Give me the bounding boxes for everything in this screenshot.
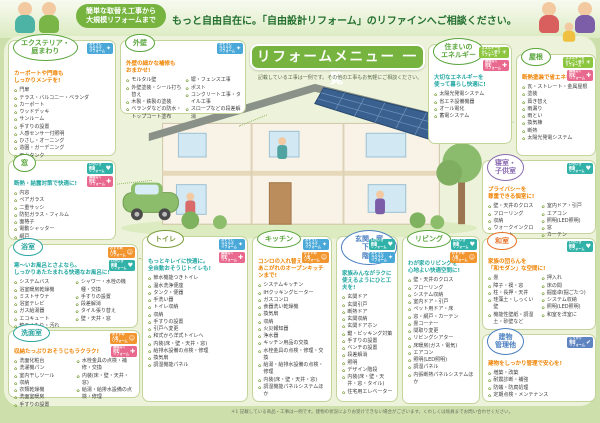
- menu-item: ✿室内干しツール: [14, 373, 73, 380]
- header-bubble: 簡単な取替え工事から 大規模リフォームまで: [76, 4, 166, 28]
- menu-item: ✿ポスト: [186, 85, 242, 92]
- menu-item-label: 段差解消: [347, 352, 367, 359]
- menu-item: ✿水栓金具の点検・修理・交換: [258, 348, 327, 363]
- menu-item: ✿珪藻土・しっくい壁: [488, 297, 538, 312]
- menu-item-label: 壁・天井のクロス: [413, 277, 453, 284]
- menu-item: ✿手すりの設置: [14, 402, 73, 409]
- menu-item-label: 洗濯機パン: [19, 365, 44, 372]
- menu-item-label: 住宅用エレベーター: [347, 389, 392, 396]
- item-list: ✿畳✿障子・襖・窓✿柱・長押・天井✿珪藻土・しっくい壁✿機能性壁紙・調湿土・砂壁…: [488, 275, 591, 326]
- menu-item-label: テラス・バルコニー・ベランダ: [19, 95, 89, 102]
- flower-bullet-icon: ✿: [342, 302, 345, 309]
- menu-item-label: 温水洗浄便座: [153, 283, 183, 290]
- flower-bullet-icon: ✿: [258, 348, 261, 355]
- badge-group: おそうじ ラクラク リフォーム✦: [217, 43, 243, 54]
- badge-kenko: いきいき 健康 リフォーム♥: [567, 163, 593, 174]
- menu-item: ✿エアコン: [408, 350, 475, 357]
- cross-icon: ✚: [238, 255, 243, 261]
- menu-item-label: 二重サッシ: [19, 205, 44, 212]
- flower-bullet-icon: ✿: [186, 92, 189, 99]
- flower-bullet-icon: ✿: [14, 102, 17, 109]
- menu-item-label: 機能性壁紙・調湿土・砂壁など: [493, 312, 537, 327]
- menu-item-label: 収納: [263, 319, 273, 326]
- menu-item-label: タンク・便器: [153, 290, 183, 297]
- flower-bullet-icon: ✿: [14, 380, 17, 387]
- menu-item: ✿玄関引戸: [342, 302, 393, 309]
- flower-bullet-icon: ✿: [14, 190, 17, 197]
- door: [269, 183, 291, 225]
- flower-bullet-icon: ✿: [342, 374, 345, 381]
- menu-item-label: 玄関引戸: [347, 302, 367, 309]
- menu-item: ✿トイレ収納: [148, 304, 243, 311]
- menu-item: ✿内装(床・壁・天井・窓・タイル): [342, 374, 393, 389]
- flower-bullet-icon: ✿: [14, 109, 17, 116]
- flower-bullet-icon: ✿: [342, 331, 345, 338]
- badge-label: いきいき 健康 リフォーム: [569, 163, 585, 174]
- menu-item: ✿室内ドア・引戸: [542, 203, 592, 210]
- menu-item-label: 水栓金具の点検・補修・交換: [82, 358, 135, 373]
- menu-item: ✿フローリング: [408, 285, 475, 292]
- category-title: トイレ: [147, 230, 184, 248]
- menu-item-label: エコキュート: [19, 316, 49, 323]
- flower-bullet-icon: ✿: [342, 345, 345, 352]
- flower-bullet-icon: ✿: [258, 377, 261, 384]
- menu-item-label: 床の間: [547, 283, 562, 290]
- flower-bullet-icon: ✿: [14, 316, 17, 323]
- sparkle-icon: ✦: [106, 46, 111, 52]
- flower-bullet-icon: ✿: [488, 275, 491, 282]
- menu-item: ✿ミストサウナ: [14, 294, 72, 301]
- sparkle-icon: ✦: [322, 242, 327, 248]
- badge-kenko: いきいき 健康 リフォーム♥: [87, 163, 113, 174]
- menu-item-label: 塀・フェンス工事: [191, 77, 231, 84]
- person-body: [277, 145, 287, 159]
- menu-item: ✿段差解消: [342, 352, 393, 359]
- flower-bullet-icon: ✿: [408, 277, 411, 284]
- badge-group: しっかり 管理 リフォーム✔: [567, 337, 593, 348]
- flower-bullet-icon: ✿: [408, 335, 411, 342]
- menu-item-label: 玄関ドアホン: [347, 323, 377, 330]
- menu-item: ✿手すりの設置: [148, 319, 243, 326]
- smiley-icon: ☺: [469, 255, 475, 261]
- category-box-washroom: 洗面室 おすすめ 人気 リフォーム☺無理なく 防犯 リフォーム✚ 収納たっぷりお…: [8, 330, 140, 398]
- flower-bullet-icon: ✿: [14, 116, 17, 123]
- menu-item-label: ミストサウナ: [19, 294, 49, 301]
- flower-bullet-icon: ✿: [148, 362, 151, 369]
- menu-item: ✿太陽光発電システム: [434, 91, 507, 98]
- flower-bullet-icon: ✿: [522, 99, 525, 106]
- flower-bullet-icon: ✿: [542, 211, 545, 218]
- menu-item: ✿ペット用ドア・床: [408, 306, 475, 313]
- category-box-toilet: トイレ おそうじ ラクラク リフォーム✦無理なく 防犯 リフォーム✚ もっとキレ…: [142, 236, 248, 402]
- item-list: ✿壁・天井のクロス✿フローリング✿システム収納✿室内ドア・引戸✿ペット用ドア・床…: [408, 277, 475, 386]
- menu-item-label: モルタル壁: [131, 77, 156, 84]
- cross-icon: ✚: [130, 349, 135, 355]
- flower-bullet-icon: ✿: [126, 85, 129, 92]
- menu-item-label: 太陽光発電システム: [439, 91, 484, 98]
- flower-bullet-icon: ✿: [14, 365, 17, 372]
- menu-item: ✿雨漏り: [522, 106, 591, 113]
- flower-bullet-icon: ✿: [77, 358, 80, 365]
- flower-bullet-icon: ✿: [14, 402, 17, 409]
- category-title: 洗面室: [13, 324, 50, 342]
- badge-group: いきいき 健康 リフォーム♥無理なく 防犯 リフォーム✚: [87, 163, 113, 187]
- category-title: 住まいの エネルギー: [433, 38, 484, 65]
- item-list: ✿増築・改築✿耐震診断・補強✿防蟻・防腐処理✿定期点検・メンテナンス: [488, 370, 591, 399]
- window: [178, 133, 206, 157]
- flower-bullet-icon: ✿: [542, 275, 545, 282]
- flower-bullet-icon: ✿: [148, 333, 151, 340]
- menu-item-label: IHクッキングヒーター: [263, 290, 313, 297]
- flower-bullet-icon: ✿: [342, 389, 345, 396]
- menu-item-label: 窓: [547, 225, 552, 232]
- menu-item-label: 葺き替え: [527, 99, 547, 106]
- menu-item: ✿給湯・給排水設備の点検・修理: [258, 362, 327, 377]
- menu-item: ✿ガス給湯器: [14, 308, 72, 315]
- person-figure: [38, 2, 60, 35]
- menu-item-label: 収納: [493, 218, 503, 225]
- badge-group: おすすめ 人気 リフォーム☺無理なく 防犯 リフォーム✚: [110, 333, 137, 357]
- menu-item-label: システムバス: [19, 279, 49, 286]
- category-box-wall: 外壁 おそうじ ラクラク リフォーム✦ 外壁の細かな補修も おまかせ! ✿モルタ…: [120, 40, 246, 114]
- flower-bullet-icon: ✿: [342, 338, 345, 345]
- menu-item-label: 人感センサー付照明: [19, 131, 64, 138]
- menu-item-label: 手すりの設置: [153, 319, 183, 326]
- flower-bullet-icon: ✿: [258, 340, 261, 347]
- category-tagline: 大切なエネルギーを 使って暮らし快適に!: [434, 75, 507, 89]
- flower-bullet-icon: ✿: [14, 387, 17, 394]
- menu-item-label: カーポート: [19, 102, 44, 109]
- flower-bullet-icon: ✿: [342, 323, 345, 330]
- flower-bullet-icon: ✿: [76, 294, 79, 301]
- menu-item: ✿玄関ドア: [342, 294, 393, 301]
- flower-bullet-icon: ✿: [14, 294, 17, 301]
- menu-item-label: 蓄電システム: [439, 113, 469, 120]
- menu-item: ✿耐震診断・補強: [488, 377, 591, 384]
- category-title: リビング: [407, 230, 451, 248]
- category-box-bedroom: 寝室・ 子供室 いきいき 健康 リフォーム♥ プライバシーを 尊重できる個室に!…: [482, 160, 596, 234]
- flower-bullet-icon: ✿: [76, 279, 79, 286]
- menu-item-label: システムキッチン: [263, 282, 303, 289]
- flower-bullet-icon: ✿: [408, 306, 411, 313]
- menu-item-label: フローリング: [493, 211, 523, 218]
- menu-item-label: 照明(LED照明): [547, 218, 581, 225]
- menu-item-label: 調湿機能パネル: [153, 362, 188, 369]
- flower-bullet-icon: ✿: [522, 91, 525, 98]
- badge-energy: エネルギーを かしこく使う リフォーム☀: [479, 47, 509, 58]
- menu-item: ✿定期点検・メンテナンス: [488, 392, 591, 399]
- badge-label: おすすめ 人気 リフォーム: [304, 252, 320, 263]
- badge-bohan: 無理なく 防犯 リフォーム✚: [219, 252, 245, 263]
- badge-label: おそうじ ラクラク リフォーム: [89, 43, 105, 54]
- menu-item-label: 内装(床・壁・天井・窓): [153, 341, 207, 348]
- heart-icon: ♥: [128, 263, 133, 269]
- menu-item-label: 門扉: [19, 87, 29, 94]
- menu-item-label: 照明: [347, 360, 357, 367]
- flower-bullet-icon: ✿: [77, 387, 80, 394]
- flower-bullet-icon: ✿: [408, 350, 411, 357]
- menu-item: ✿床暖房(ガス・電気): [408, 343, 475, 350]
- item-list: ✿玄関ドア✿玄関引戸✿断熱ドア✿玄関収納✿玄関ドアホン✿鍵・ピッキング対策✿手す…: [342, 294, 393, 396]
- menu-item: ✿フローリング: [488, 211, 538, 218]
- badge-group: おそうじ ラクラク リフォーム✦: [87, 43, 113, 54]
- person-figure: [538, 2, 560, 35]
- category-box-roof: 屋根 エネルギーを かしこく使う リフォーム☀無理なく 防犯 リフォーム✚ 断熱…: [516, 54, 596, 156]
- category-title: 寝室・ 子供室: [487, 154, 524, 181]
- item-list: ✿内窓✿ペアガラス✿二重サッシ✿防犯ガラス・フィルム✿面格子✿電動シャッター✿網…: [14, 190, 111, 241]
- menu-item: ✿システム収納: [542, 297, 592, 304]
- menu-item: ✿防蟻・防腐処理: [488, 385, 591, 392]
- menu-item: ✿壁・天井・窓: [76, 316, 134, 323]
- flower-bullet-icon: ✿: [14, 394, 17, 401]
- menu-item-label: 収納: [153, 312, 163, 319]
- flower-bullet-icon: ✿: [342, 316, 345, 323]
- menu-item: ✿和室を洋室に: [542, 312, 592, 319]
- menu-item: ✿サンルーム: [14, 116, 111, 123]
- menu-item-label: 給排水設備の点検・修理: [153, 348, 208, 355]
- flower-bullet-icon: ✿: [14, 197, 17, 204]
- badge-label: 無理なく 防犯 リフォーム: [221, 252, 237, 263]
- flower-bullet-icon: ✿: [434, 91, 437, 98]
- badge-group: エネルギーを かしこく使う リフォーム☀無理なく 防犯 リフォーム✚: [563, 57, 593, 81]
- menu-item: ✿掘座卓(掘ごたつ): [542, 290, 592, 297]
- badge-label: いきいき 健康 リフォーム: [453, 239, 469, 250]
- menu-item: ✿内装(床・壁・天井・窓): [258, 377, 327, 384]
- menu-item-label: 水栓金具の点検・修理・交換: [263, 348, 327, 363]
- menu-item: ✿テラス・バルコニー・ベランダ: [14, 95, 111, 102]
- menu-item: ✿窓: [542, 225, 592, 232]
- flower-bullet-icon: ✿: [76, 301, 79, 308]
- flower-bullet-icon: ✿: [342, 360, 345, 367]
- category-title: 外壁: [125, 34, 155, 52]
- menu-item-label: ウッドデッキ: [19, 109, 49, 116]
- menu-item-label: 手すりの設置: [81, 294, 111, 301]
- menu-item: ✿水栓金具の点検・補修・交換: [77, 358, 136, 373]
- flower-bullet-icon: ✿: [434, 113, 437, 120]
- category-tagline: 外壁の細かな補修も おまかせ!: [126, 61, 241, 75]
- menu-item: ✿外壁塗装・シール打ち替え: [126, 85, 182, 100]
- menu-item: ✿コンクリート工事・タイル工事: [186, 92, 242, 107]
- sparkle-icon: ✦: [388, 255, 393, 261]
- category-box-energy: 住まいの エネルギー エネルギーを かしこく使う リフォーム☀無理なく 防犯 リ…: [428, 44, 512, 144]
- flower-bullet-icon: ✿: [258, 333, 261, 340]
- menu-item-label: 手すりの設置: [19, 402, 49, 409]
- check-icon: ✔: [586, 340, 591, 346]
- menu-item: ✿照明: [342, 360, 393, 367]
- menu-item: ✿ベランダなどの防水・トップコート塗布: [126, 106, 182, 121]
- item-list: ✿洗面化粧台✿洗濯機パン✿室内干しツール✿収納✿衣類乾燥機✿洗面室暖房✿手すりの…: [14, 358, 135, 409]
- menu-item: ✿シャワー・水栓の機種・交換: [76, 279, 134, 294]
- badge-label: いきいき 健康 リフォーム: [371, 239, 387, 250]
- badge-label: 無理なく 防犯 リフォーム: [485, 60, 501, 71]
- menu-item: ✿塀・フェンス工事: [186, 77, 242, 84]
- flower-bullet-icon: ✿: [408, 328, 411, 335]
- menu-item-label: 柱・長押・天井: [493, 290, 528, 297]
- category-tagline: 家族みんながラクに 使えるようにひと工夫を!: [342, 271, 393, 292]
- menu-item-label: 押入れ: [547, 275, 562, 282]
- badge-label: 無理なく 防犯 リフォーム: [569, 70, 585, 81]
- menu-item-label: 内装(床・壁・天井・窓): [263, 377, 317, 384]
- menu-item: ✿ペアガラス: [14, 197, 111, 204]
- menu-item: ✿障子・襖・窓: [488, 283, 538, 290]
- menu-item: ✿スロープなどの段差解消: [186, 106, 242, 121]
- badge-label: しっかり 管理 リフォーム: [569, 337, 585, 348]
- menu-item-label: 床暖房(ガス・電気): [413, 343, 457, 350]
- menu-item: ✿リビングシアター: [408, 335, 475, 342]
- item-list: ✿システムバス✿浴室暖房乾燥機✿ミストサウナ✿浴室テレビ✿ガス給湯器✿エコキュー…: [14, 279, 133, 330]
- category-tagline: カーポートや門扉も しっかりメンテを!: [14, 71, 111, 85]
- flower-bullet-icon: ✿: [522, 135, 525, 142]
- menu-item: ✿葺き替え: [522, 99, 591, 106]
- flower-bullet-icon: ✿: [14, 373, 17, 380]
- menu-item-label: キッチン用品の交換: [263, 340, 308, 347]
- badge-sukkiri: おそうじ ラクラク リフォーム✦: [219, 239, 245, 250]
- badge-kenko: いきいき 健康 リフォーム♥: [451, 239, 477, 250]
- menu-item-label: 雨漏り: [527, 106, 542, 113]
- menu-item-label: 塗装: [527, 91, 537, 98]
- flower-bullet-icon: ✿: [488, 312, 491, 319]
- smiley-icon: ☺: [321, 255, 327, 261]
- badge-group: いきいき 健康 リフォーム♥おそうじ ラクラク リフォーム✦: [369, 239, 395, 263]
- flower-bullet-icon: ✿: [258, 319, 261, 326]
- flower-bullet-icon: ✿: [14, 308, 17, 315]
- badge-group: おすすめ 人気 リフォーム☺いきいき 健康 リフォーム♥: [108, 247, 135, 271]
- menu-item: ✿住宅用エレベーター: [342, 389, 393, 396]
- menu-item: ✿内装(床・壁・天井・窓): [77, 373, 136, 388]
- badge-kenko: いきいき 健康 リフォーム♥: [369, 239, 395, 250]
- menu-item: ✿壁・天井のクロス: [408, 277, 475, 284]
- menu-item-label: トイレ収納: [153, 304, 178, 311]
- menu-item-label: 給湯・給排水設備の点検・修理: [263, 362, 327, 377]
- menu-item: ✿調湿パネル: [408, 364, 475, 371]
- menu-item-label: 手すりの設置: [19, 124, 49, 131]
- category-title: エクステリア・ 庭まわり: [13, 34, 78, 61]
- heart-icon: ♥: [586, 166, 591, 172]
- menu-item-label: 耐震診断・補強: [493, 377, 528, 384]
- flower-bullet-icon: ✿: [488, 283, 491, 290]
- heart-icon: ♥: [586, 244, 591, 250]
- menu-item: ✿洗面室暖房: [14, 394, 73, 401]
- flower-bullet-icon: ✿: [488, 290, 491, 297]
- category-box-exterior: エクステリア・ 庭まわり おそうじ ラクラク リフォーム✦ カーポートや門扉も …: [8, 40, 116, 156]
- menu-item-label: 内装(床・壁・天井・窓): [82, 373, 135, 388]
- badge-group: いきいき 健康 リフォーム♥おすすめ 人気 リフォーム☺: [450, 239, 477, 263]
- menu-item-label: エアコン: [413, 350, 433, 357]
- flower-bullet-icon: ✿: [408, 321, 411, 328]
- badge-label: おすすめ 人気 リフォーム: [112, 333, 128, 344]
- category-title: キッチン: [257, 230, 301, 248]
- flower-bullet-icon: ✿: [14, 205, 17, 212]
- badge-label: おすすめ 人気 リフォーム: [110, 247, 126, 258]
- menu-item-label: 室内干しツール: [19, 373, 54, 380]
- menu-item: ✿断熱: [522, 128, 591, 135]
- badge-label: いきいき 健康 リフォーム: [111, 260, 127, 271]
- menu-item-label: シャワー・水栓の機種・交換: [81, 279, 133, 294]
- menu-item-label: 内装(床・壁・天井・窓・タイル): [347, 374, 393, 389]
- flower-bullet-icon: ✿: [126, 99, 129, 106]
- sparkle-icon: ✦: [238, 242, 243, 248]
- badge-label: おそうじ ラクラク リフォーム: [219, 43, 235, 54]
- flower-bullet-icon: ✿: [148, 304, 151, 311]
- menu-item: ✿ウッドデッキ: [14, 109, 111, 116]
- menu-item: ✿IHクッキングヒーター: [258, 290, 327, 297]
- flower-bullet-icon: ✿: [14, 358, 17, 365]
- flower-bullet-icon: ✿: [126, 106, 129, 113]
- menu-item-label: 造園・ガーデニング: [19, 145, 64, 152]
- menu-item: ✿照明(LED照明): [542, 304, 592, 311]
- menu-item: ✿窓・網戸・カーテン: [408, 314, 475, 321]
- menu-item: ✿システム収納: [408, 292, 475, 299]
- item-list: ✿太陽光発電システム✿省エネ設備機器✿オール電化✿蓄電システム: [434, 91, 507, 120]
- badge-label: いきいき 健康 リフォーム: [89, 163, 105, 174]
- menu-item-label: 換気棟: [527, 120, 542, 127]
- sun-icon: ☀: [502, 50, 507, 56]
- menu-item: ✿床の間: [542, 283, 592, 290]
- flower-bullet-icon: ✿: [14, 87, 17, 94]
- flower-bullet-icon: ✿: [408, 299, 411, 306]
- menu-item-label: 調湿機能パネルシステムほか: [263, 384, 327, 399]
- menu-item-label: 照明(LED照明): [547, 304, 581, 311]
- flower-bullet-icon: ✿: [408, 292, 411, 299]
- menu-item-label: ペアガラス: [19, 197, 44, 204]
- flower-bullet-icon: ✿: [258, 290, 261, 297]
- person-figure: [574, 2, 596, 35]
- menu-item-label: 和室を洋室に: [547, 312, 577, 319]
- flower-bullet-icon: ✿: [148, 326, 151, 333]
- flower-bullet-icon: ✿: [14, 219, 17, 226]
- menu-item: ✿内装(床・壁・天井・窓): [148, 341, 243, 348]
- menu-item: ✿電動シャッター: [14, 226, 111, 233]
- flower-bullet-icon: ✿: [76, 316, 79, 323]
- menu-item-label: システム収納: [413, 292, 443, 299]
- cross-icon: ✚: [586, 73, 591, 79]
- menu-item: ✿キッチン用品の交換: [258, 340, 327, 347]
- flower-bullet-icon: ✿: [14, 279, 17, 286]
- window: [368, 185, 406, 213]
- footnote: ＊1 記載している商品・工事は一例です。建物の状況によりお受けできない場合がござ…: [150, 409, 594, 415]
- menu-item: ✿機能性壁紙・調湿土・砂壁など: [488, 312, 538, 327]
- menu-item: ✿壁・天井のクロス: [488, 203, 538, 210]
- flower-bullet-icon: ✿: [258, 384, 261, 391]
- flower-bullet-icon: ✿: [488, 392, 491, 399]
- menu-item-label: 節水機能つきトイレ: [153, 275, 198, 282]
- flower-bullet-icon: ✿: [148, 348, 151, 355]
- flower-bullet-icon: ✿: [14, 131, 17, 138]
- menu-item-label: 珪藻土・しっくい壁: [493, 297, 537, 312]
- menu-item-label: ペット用ドア・床: [413, 306, 453, 313]
- menu-item: ✿換気扇: [258, 311, 327, 318]
- category-title: 屋根: [521, 48, 551, 66]
- badge-sukkiri: おそうじ ラクラク リフォーム✦: [369, 252, 395, 263]
- flower-bullet-icon: ✿: [342, 352, 345, 359]
- menu-item: ✿二重サッシ: [14, 205, 111, 212]
- flower-bullet-icon: ✿: [148, 355, 151, 362]
- flower-bullet-icon: ✿: [488, 218, 491, 225]
- flower-bullet-icon: ✿: [77, 373, 80, 380]
- flower-bullet-icon: ✿: [126, 77, 129, 84]
- person-head: [278, 137, 286, 145]
- badge-sukkiri: おそうじ ラクラク リフォーム✦: [303, 239, 329, 250]
- menu-item: ✿調湿機能パネル: [148, 362, 243, 369]
- menu-item-label: 和式から洋式トイレへ: [153, 333, 203, 340]
- badge-label: おそうじ ラクラク リフォーム: [305, 239, 321, 250]
- menu-item-label: ベランダなどの防水・トップコート塗布: [131, 106, 181, 121]
- menu-item-label: エアコン: [547, 211, 567, 218]
- heart-icon: ♥: [106, 166, 111, 172]
- menu-note: 記載している工事は一例です。その他の工事もお気軽にご相談ください。: [240, 74, 440, 81]
- flower-bullet-icon: ✿: [342, 367, 345, 374]
- window: [366, 133, 406, 157]
